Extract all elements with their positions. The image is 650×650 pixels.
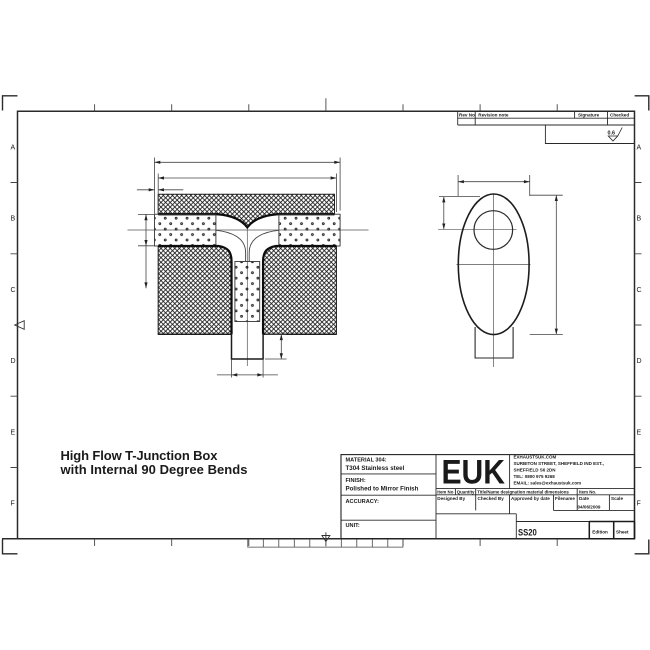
svg-text:SURBITON STREET, SHEFFIELD IND: SURBITON STREET, SHEFFIELD IND EST., — [514, 461, 604, 466]
svg-text:D: D — [637, 358, 642, 365]
svg-text:SHEFFIELD S6 2DN: SHEFFIELD S6 2DN — [514, 468, 556, 473]
svg-text:A: A — [11, 144, 16, 151]
svg-text:TEL: 0800 975 9268: TEL: 0800 975 9268 — [514, 474, 556, 479]
svg-text:EUK: EUK — [442, 453, 506, 491]
svg-text:F: F — [637, 501, 641, 508]
svg-text:Title/Name designation materia: Title/Name designation material dimensio… — [477, 489, 569, 494]
svg-text:04/06/2009: 04/06/2009 — [578, 505, 601, 510]
svg-text:B: B — [11, 216, 16, 223]
svg-text:Sheet: Sheet — [616, 529, 629, 534]
svg-text:Checked: Checked — [610, 113, 629, 118]
svg-text:FINISH:: FINISH: — [346, 478, 366, 484]
svg-text:Revision note: Revision note — [478, 113, 509, 118]
svg-text:D: D — [11, 358, 16, 365]
svg-text:SS20: SS20 — [518, 527, 537, 537]
svg-text:Filename: Filename — [555, 496, 575, 501]
svg-text:F: F — [11, 501, 15, 508]
svg-text:ACCURACY:: ACCURACY: — [346, 499, 380, 505]
svg-text:E: E — [637, 429, 642, 436]
svg-text:C: C — [11, 287, 16, 294]
svg-text:MATERIAL 304:: MATERIAL 304: — [346, 457, 387, 463]
svg-text:Polished to Mirror Finish: Polished to Mirror Finish — [346, 486, 419, 493]
svg-text:T304 Stainless steel: T304 Stainless steel — [346, 465, 405, 472]
svg-text:UNIT:: UNIT: — [346, 523, 360, 529]
svg-text:Rev No: Rev No — [459, 113, 475, 118]
svg-text:Signature: Signature — [578, 113, 600, 118]
svg-text:A: A — [637, 144, 642, 151]
svg-text:Approved by date: Approved by date — [511, 496, 550, 501]
svg-text:Checked By: Checked By — [478, 496, 505, 501]
svg-text:EMAIL: sales@exhaustsuk.com: EMAIL: sales@exhaustsuk.com — [514, 481, 582, 486]
svg-text:Scale: Scale — [611, 496, 623, 501]
svg-text:E: E — [11, 429, 16, 436]
svg-text:Item No.: Item No. — [579, 489, 596, 494]
svg-text:EXHAUSTSUK.COM: EXHAUSTSUK.COM — [514, 455, 557, 460]
svg-text:with Internal 90 Degree Bends: with Internal 90 Degree Bends — [60, 462, 248, 477]
svg-text:High Flow T-Junction Box: High Flow T-Junction Box — [61, 448, 219, 463]
svg-text:C: C — [637, 287, 642, 294]
svg-text:Item No: Item No — [437, 489, 453, 494]
svg-text:Designed By: Designed By — [437, 496, 465, 501]
svg-text:B: B — [637, 216, 642, 223]
svg-text:Quantity: Quantity — [457, 489, 475, 494]
svg-text:Edition: Edition — [592, 529, 608, 534]
svg-text:Date: Date — [579, 496, 589, 501]
